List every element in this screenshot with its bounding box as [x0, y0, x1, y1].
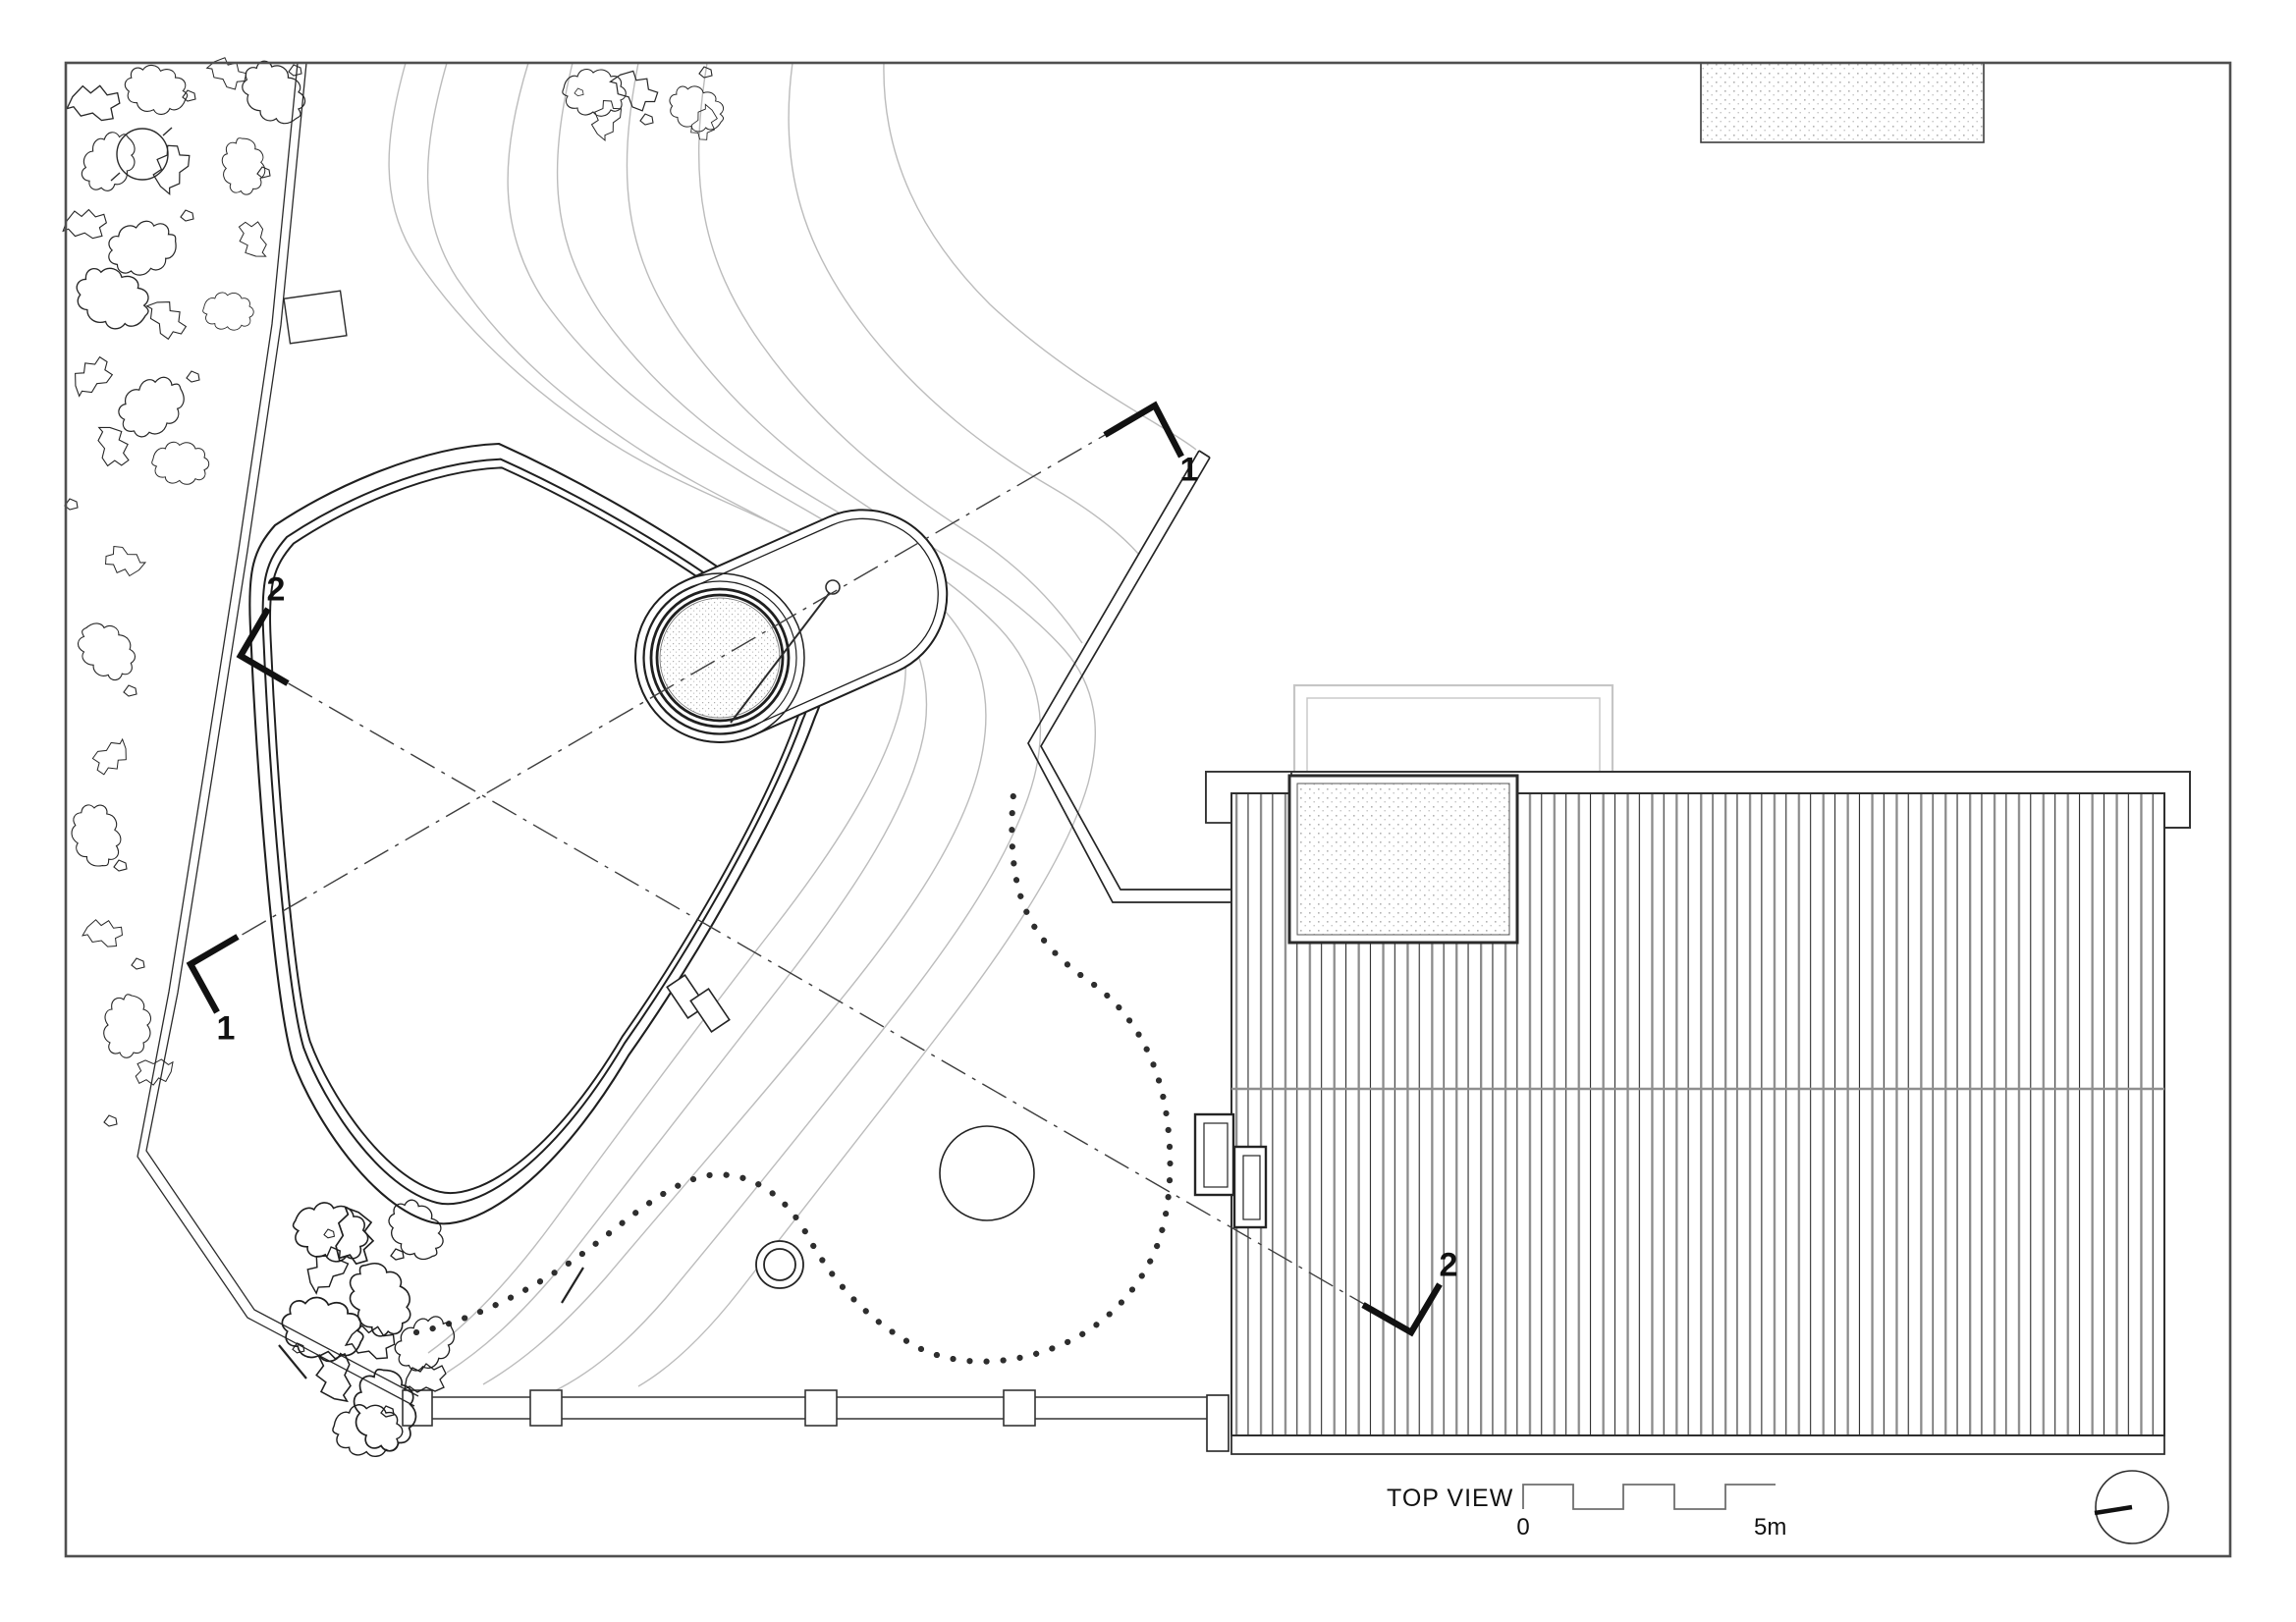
forest-tree-trunk: [111, 128, 172, 181]
garden-step-boards: [279, 1268, 583, 1379]
fence-gate: [284, 291, 347, 344]
boardwalk-posts: [403, 1390, 1035, 1426]
section-1-left-label: 1: [217, 1010, 236, 1049]
scale-end-label: 5m: [1754, 1514, 1786, 1541]
section-2-right-label: 2: [1440, 1247, 1458, 1285]
pond-entry-steps: [667, 975, 729, 1032]
roof-skylight: [1289, 776, 1517, 943]
section-1-right-label: 1: [1180, 452, 1199, 490]
building: [1195, 685, 2190, 1454]
courtyard-screen-wall: [1028, 451, 1233, 902]
boardwalk: [403, 1390, 1207, 1426]
scale-zero-label: 0: [1516, 1514, 1529, 1541]
roof-bottom-eave: [1231, 1435, 2164, 1454]
architectural-site-plan-sheet: 2 1 1 2 TOP VIEW 0 5m: [0, 0, 2296, 1622]
small-tree-trunk: [756, 1241, 803, 1288]
paved-pad-north: [1701, 63, 1984, 142]
vegetation-scribbles-south: [277, 1191, 465, 1456]
view-title: TOP VIEW: [1387, 1485, 1513, 1513]
site-plan-canvas: [0, 0, 2296, 1622]
foundation-outline: [1294, 685, 1613, 774]
north-orientation-icon: [2095, 1471, 2168, 1543]
section-2-left-label: 2: [267, 571, 286, 610]
lawn-tree-trunk: [940, 1126, 1034, 1220]
section-1-right-arrow: [1105, 405, 1181, 457]
south-step: [1207, 1395, 1229, 1451]
section-1-left-arrow: [191, 937, 238, 1012]
scale-bar: [1523, 1485, 1776, 1509]
hot-tub-water: [660, 598, 780, 718]
